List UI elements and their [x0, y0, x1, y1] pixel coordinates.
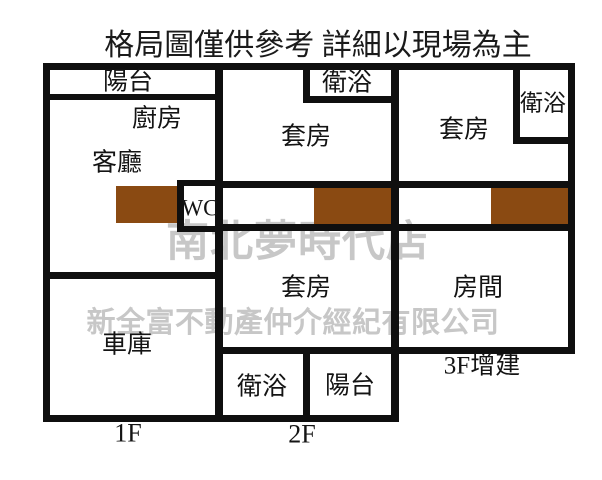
wall-left [43, 63, 50, 422]
room-label-bath-2f-top: 衛浴 [322, 69, 372, 97]
wall-bath-3f-bottom [513, 137, 575, 144]
wall-divider-2f-3f [391, 63, 399, 422]
floor-plan-drawing: 陽台 廚房 客廳 WC 車庫 衛浴 套房 套房 衛浴 陽台 套房 衛浴 房間 1… [0, 0, 602, 480]
room-label-balcony-1f: 陽台 [103, 68, 153, 96]
room-label-suite-2f-top: 套房 [281, 123, 331, 151]
page-title: 格局圖僅供參考 詳細以現場為主 [104, 20, 532, 64]
room-label-bath-2f-bottom: 衛浴 [237, 373, 287, 401]
room-label-living-room: 客廳 [92, 149, 142, 177]
floor-label-2f: 2F [288, 420, 315, 449]
room-label-wc: WC [181, 196, 218, 221]
wall-bath-3f-left [513, 63, 520, 144]
wall-right [568, 63, 575, 354]
floor-label-3f-addition: 3F增建 [444, 352, 520, 380]
room-label-suite-2f-bottom: 套房 [281, 274, 331, 302]
stairs-block-3f [491, 188, 568, 224]
room-label-balcony-2f: 陽台 [325, 372, 375, 400]
wall-bath-balcony-divider [303, 354, 310, 422]
floor-label-1f: 1F [114, 419, 141, 448]
floor-plan-page: 格局圖僅供參考 詳細以現場為主 南北夢時代店 新全富不動產仲介經紀有限公司 [0, 0, 602, 480]
wall-divider-1f-2f [215, 63, 223, 422]
room-label-room-3f: 房間 [453, 274, 503, 302]
stairs-block-2f [314, 188, 391, 224]
wall-lower-span [215, 347, 575, 354]
room-label-kitchen: 廚房 [132, 105, 182, 133]
room-label-suite-3f: 套房 [439, 116, 489, 144]
wall-bath-2f-bottom [303, 96, 399, 103]
room-label-bath-3f: 衛浴 [520, 91, 566, 116]
room-label-garage: 車庫 [102, 331, 152, 359]
stairs-block-1f [116, 186, 177, 223]
wall-garage [43, 272, 223, 279]
